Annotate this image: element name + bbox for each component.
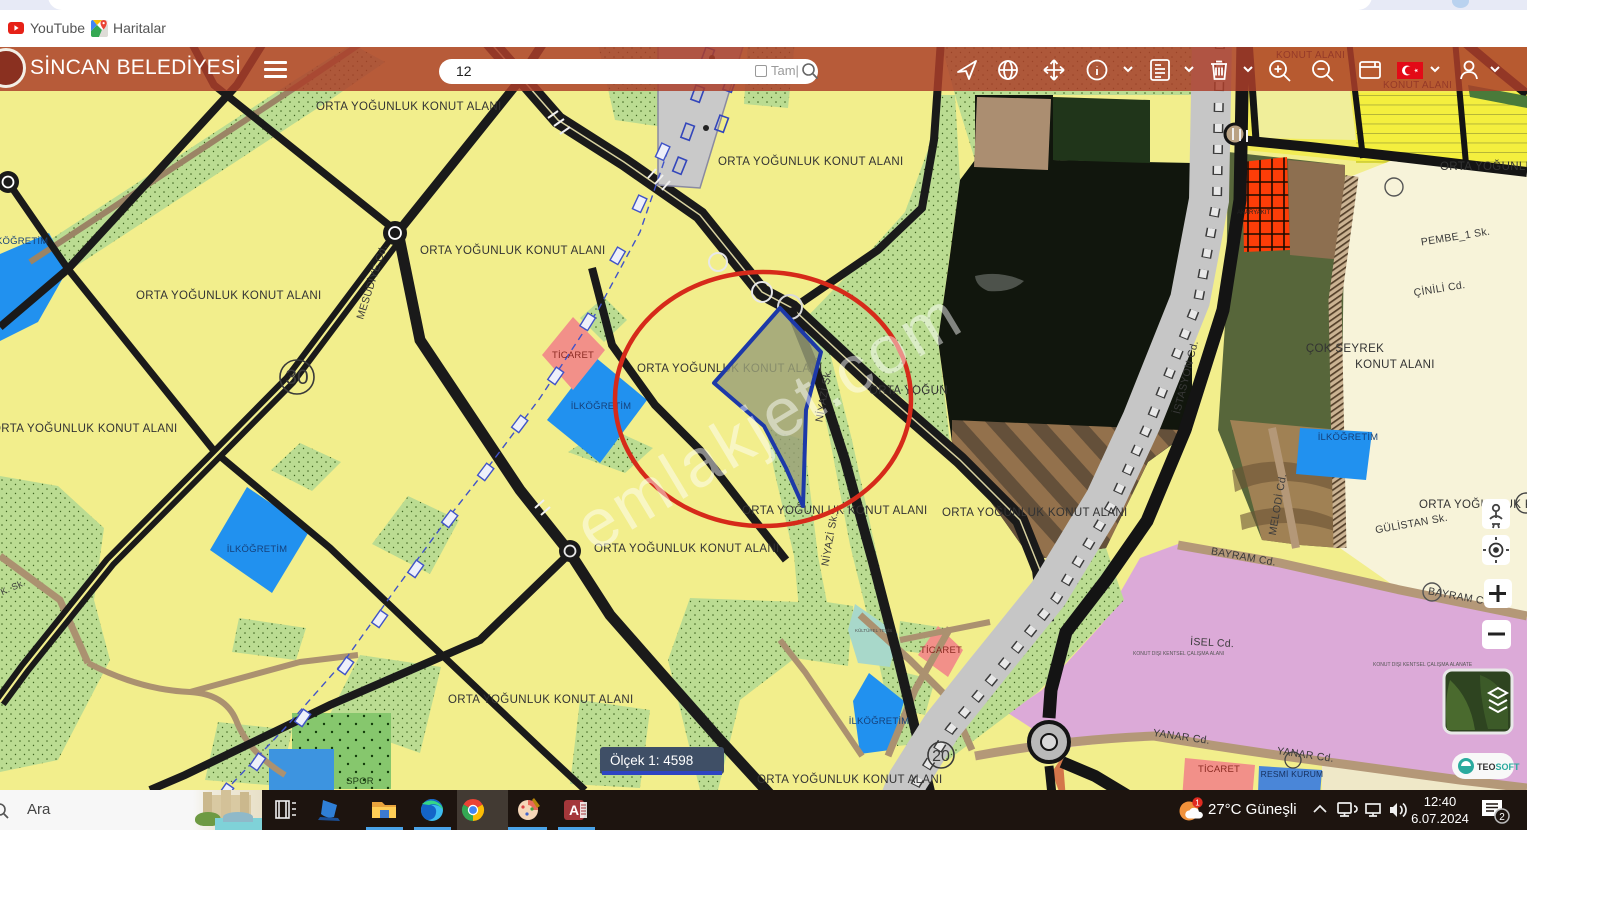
svg-text:ORTA YOĞUNLUK KONUT ALANI: ORTA YOĞUNLUK KONUT ALANI [136, 289, 322, 302]
svg-text:2: 2 [1499, 812, 1505, 823]
svg-text:A: A [569, 802, 579, 818]
svg-text:İSEL Cd.: İSEL Cd. [1190, 635, 1235, 650]
svg-text:TİCARET: TİCARET [920, 645, 962, 656]
svg-text:30: 30 [285, 366, 308, 389]
svg-text:ORTA YOĞUNLUK KONUT ALANI: ORTA YOĞUNLUK KONUT ALANI [316, 100, 502, 113]
svg-text:20: 20 [932, 748, 950, 765]
svg-text:İLKÖĞRETİM: İLKÖĞRETİM [1318, 432, 1379, 443]
svg-text:ORTA YOĞUNLUK KONUT ALANI: ORTA YOĞUNLUK KONUT ALANI [448, 693, 634, 706]
svg-text:ORTA YOĞUNLUK KONUT ALANI: ORTA YOĞUNLUK KONUT ALANI [420, 244, 606, 257]
svg-text:TİCARET: TİCARET [552, 350, 594, 361]
svg-text:ÇOK SEYREK: ÇOK SEYREK [1306, 343, 1384, 355]
svg-text:ORTA YOĞUNLUK KONUT ALANI: ORTA YOĞUNLUK KONUT ALANI [718, 155, 904, 168]
svg-text:KONUT ALANI: KONUT ALANI [1355, 359, 1435, 371]
svg-text:İLKÖĞRETİM: İLKÖĞRETİM [571, 401, 632, 412]
svg-text:AKARYAKIT: AKARYAKIT [1237, 210, 1270, 216]
svg-text:ORTA YOĞUNLUK KONUT ALANI: ORTA YOĞUNLUK KONUT ALANI [942, 506, 1128, 519]
svg-text:KÜLTÜREL TESİS: KÜLTÜREL TESİS [855, 627, 892, 633]
svg-text:ORTA YOĞUNLUK KONUT ALANI: ORTA YOĞUNLUK KONUT ALANI [757, 773, 943, 786]
svg-text:ORTA YOĞUNLUK KONUT ALANI: ORTA YOĞUNLUK KONUT ALANI [0, 422, 178, 435]
svg-text:İLKÖĞRETİM: İLKÖĞRETİM [0, 236, 48, 247]
svg-text:RESMİ KURUM: RESMİ KURUM [1261, 769, 1324, 779]
svg-text:ORTA YOĞUNLUK KONUT ALANI: ORTA YOĞUNLUK KONUT ALANI [1440, 160, 1527, 173]
svg-text:KONUT DIŞI KENTSEL ÇALIŞMA ALA: KONUT DIŞI KENTSEL ÇALIŞMA ALANATE [1373, 662, 1473, 668]
svg-text:İLKÖĞRETİM: İLKÖĞRETİM [849, 716, 910, 727]
svg-text:TİCARET: TİCARET [1198, 764, 1240, 775]
svg-text:ORTA YOĞUNLUK KONUT ALANI: ORTA YOĞUNLUK KONUT ALANI [1419, 498, 1527, 511]
svg-text:İLKÖĞRETİM: İLKÖĞRETİM [227, 544, 288, 555]
svg-text:TEOSOFT: TEOSOFT [1477, 762, 1520, 772]
svg-text:KONUT DIŞI KENTSEL ÇALIŞMA ALA: KONUT DIŞI KENTSEL ÇALIŞMA ALANI [1133, 651, 1224, 657]
svg-text:SPOR: SPOR [346, 776, 374, 787]
svg-text:Ölçek 1: 4598: Ölçek 1: 4598 [610, 753, 693, 768]
svg-text:1: 1 [1195, 799, 1200, 808]
